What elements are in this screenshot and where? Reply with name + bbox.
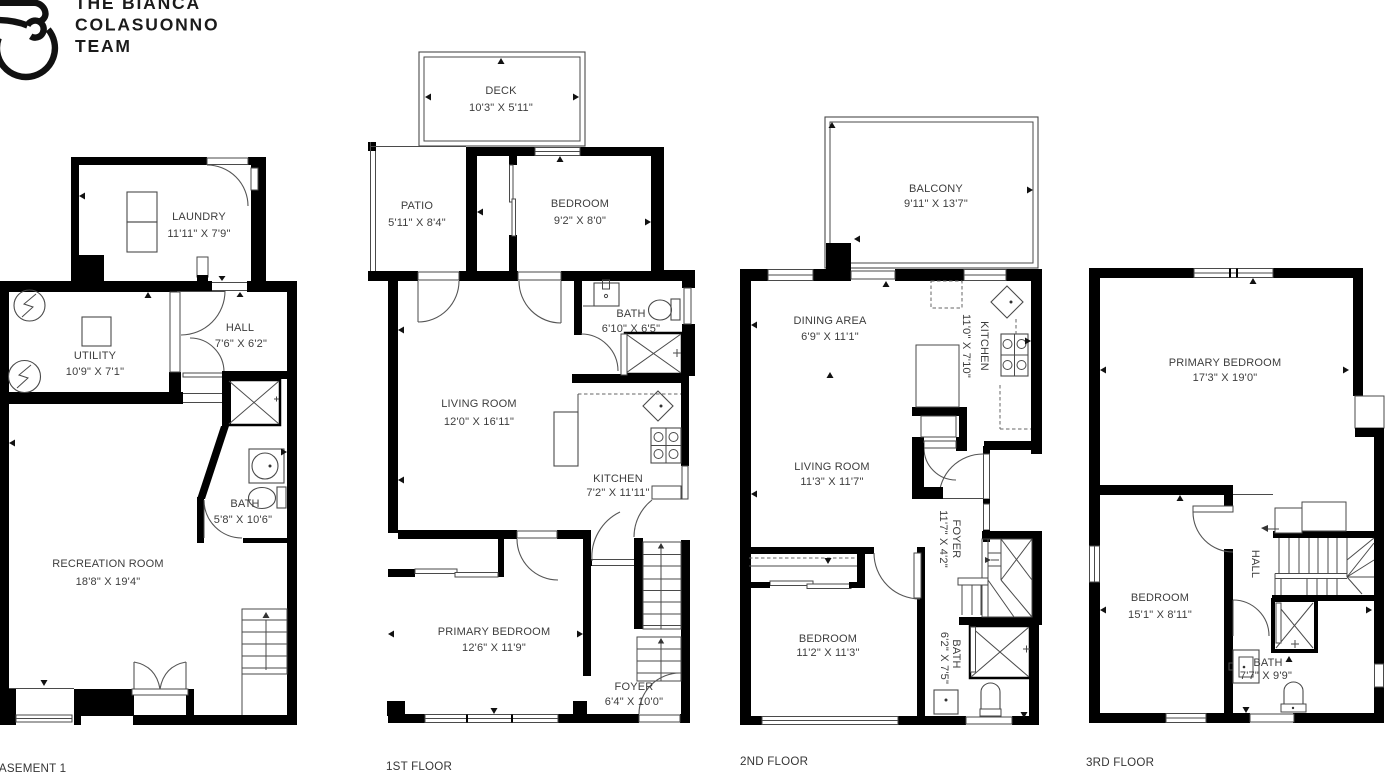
svg-text:LIVING ROOM: LIVING ROOM: [794, 461, 870, 473]
svg-text:THE BIANCA: THE BIANCA: [75, 0, 201, 13]
svg-text:BATH: BATH: [950, 639, 962, 668]
svg-text:9'2" X 8'0": 9'2" X 8'0": [554, 215, 606, 227]
svg-text:15'1" X 8'11": 15'1" X 8'11": [1128, 609, 1192, 621]
svg-text:11'2" X 11'3": 11'2" X 11'3": [796, 647, 859, 659]
svg-text:FOYER: FOYER: [950, 520, 962, 559]
svg-text:11'3" X 11'7": 11'3" X 11'7": [800, 476, 863, 488]
svg-text:BASEMENT 1: BASEMENT 1: [0, 762, 66, 775]
svg-text:BATH: BATH: [230, 498, 259, 510]
svg-text:5'8" X 10'6": 5'8" X 10'6": [214, 514, 272, 526]
svg-text:12'6" X 11'9": 12'6" X 11'9": [462, 642, 526, 654]
svg-text:12'0" X 16'11": 12'0" X 16'11": [444, 416, 514, 428]
svg-text:6'10" X 6'5": 6'10" X 6'5": [602, 323, 660, 335]
svg-text:BATH: BATH: [616, 308, 645, 320]
svg-text:11'7" X 4'2": 11'7" X 4'2": [937, 510, 949, 568]
svg-text:BATH: BATH: [1253, 657, 1282, 669]
svg-text:TEAM: TEAM: [75, 36, 132, 56]
svg-text:3RD FLOOR: 3RD FLOOR: [1086, 756, 1154, 769]
svg-text:6'9" X 11'1": 6'9" X 11'1": [801, 331, 859, 343]
svg-text:LAUNDRY: LAUNDRY: [172, 211, 226, 223]
svg-text:2ND FLOOR: 2ND FLOOR: [740, 755, 808, 768]
svg-text:LIVING ROOM: LIVING ROOM: [441, 398, 517, 410]
svg-text:BEDROOM: BEDROOM: [551, 198, 609, 210]
svg-text:DECK: DECK: [485, 85, 517, 97]
svg-text:18'8" X 19'4": 18'8" X 19'4": [76, 576, 141, 588]
svg-text:DINING AREA: DINING AREA: [793, 315, 867, 327]
svg-text:PATIO: PATIO: [401, 200, 434, 212]
svg-text:1ST FLOOR: 1ST FLOOR: [386, 760, 452, 773]
svg-text:HALL: HALL: [1249, 550, 1261, 578]
svg-text:FOYER: FOYER: [615, 681, 654, 693]
svg-text:11'11" X 7'9": 11'11" X 7'9": [167, 228, 230, 240]
svg-text:7'7" X 9'9": 7'7" X 9'9": [1240, 670, 1292, 682]
svg-text:PRIMARY BEDROOM: PRIMARY BEDROOM: [1169, 357, 1282, 369]
svg-text:RECREATION ROOM: RECREATION ROOM: [52, 558, 164, 570]
svg-text:KITCHEN: KITCHEN: [978, 321, 990, 371]
svg-text:9'11" X 13'7": 9'11" X 13'7": [904, 198, 968, 210]
svg-text:BEDROOM: BEDROOM: [1131, 592, 1189, 604]
svg-text:HALL: HALL: [226, 322, 254, 334]
svg-text:7'6" X 6'2": 7'6" X 6'2": [215, 338, 267, 350]
svg-text:6'2" X 7'5": 6'2" X 7'5": [938, 632, 950, 684]
svg-text:5'11" X 8'4": 5'11" X 8'4": [388, 217, 446, 229]
svg-text:10'9" X 7'1": 10'9" X 7'1": [66, 366, 124, 378]
svg-text:BEDROOM: BEDROOM: [799, 633, 857, 645]
svg-text:BALCONY: BALCONY: [909, 183, 963, 195]
svg-text:KITCHEN: KITCHEN: [593, 473, 643, 485]
svg-text:6'4" X 10'0": 6'4" X 10'0": [605, 696, 663, 708]
svg-text:COLASUONNO: COLASUONNO: [75, 15, 219, 35]
svg-text:7'2" X 11'11": 7'2" X 11'11": [586, 487, 649, 499]
svg-text:10'3" X 5'11": 10'3" X 5'11": [469, 102, 533, 114]
svg-text:PRIMARY BEDROOM: PRIMARY BEDROOM: [438, 626, 551, 638]
svg-text:UTILITY: UTILITY: [74, 350, 117, 362]
svg-text:17'3" X 19'0": 17'3" X 19'0": [1193, 372, 1258, 384]
svg-text:11'0" X 7'10": 11'0" X 7'10": [960, 314, 972, 378]
